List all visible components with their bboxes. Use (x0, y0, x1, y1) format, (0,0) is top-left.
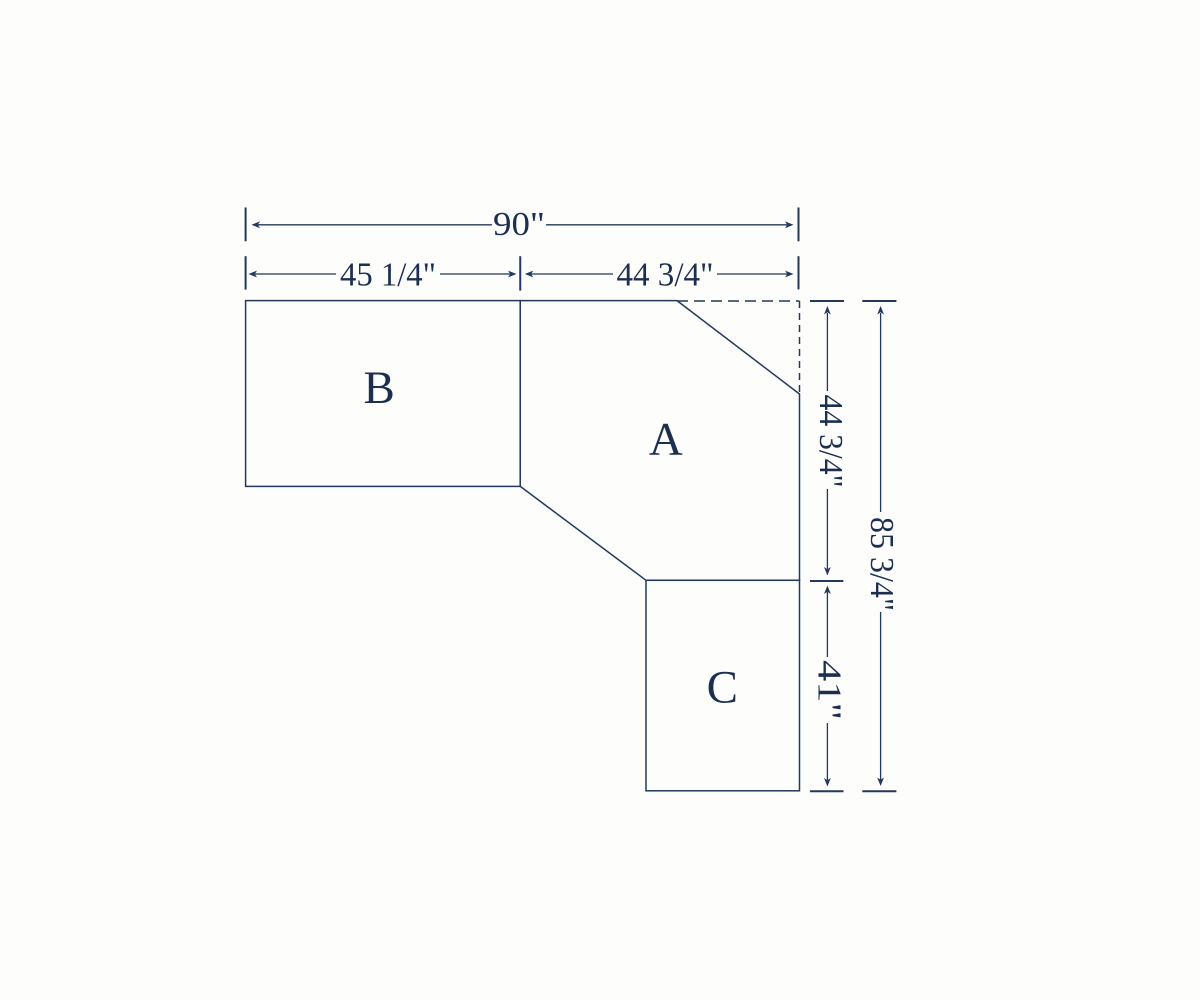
svg-text:44 3/4": 44 3/4" (812, 395, 849, 488)
svg-text:A: A (649, 414, 683, 466)
svg-text:85 3/4": 85 3/4" (863, 517, 900, 611)
svg-text:41": 41" (811, 660, 848, 720)
svg-text:44 3/4": 44 3/4" (617, 257, 714, 294)
svg-text:90": 90" (493, 206, 545, 243)
svg-text:45 1/4": 45 1/4" (340, 257, 436, 294)
svg-text:C: C (707, 662, 738, 714)
svg-text:B: B (364, 362, 395, 414)
